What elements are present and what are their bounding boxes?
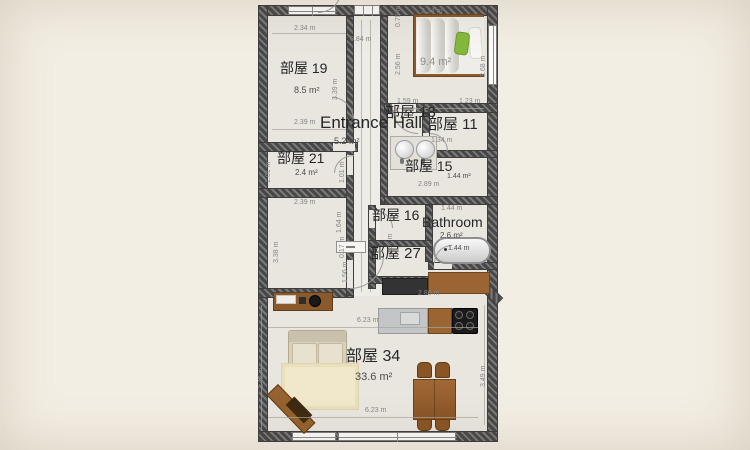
cooktop-burner — [466, 311, 474, 319]
dim-bedroom-left: 2.56 m — [395, 54, 403, 75]
dim-bathtub: 1.44 m — [448, 245, 469, 253]
room16-label: 部屋 16 — [372, 208, 419, 223]
room34-label: 部屋 34 — [346, 349, 400, 364]
dim-living-bottom: 6.23 m — [365, 407, 386, 415]
dim-bathroom-top: 1.44 m — [441, 205, 462, 213]
room15-label: 部屋 15 — [405, 159, 452, 174]
dim-room19-right: 3.39 m — [332, 79, 340, 100]
dim-midroom-right2: 0.17 m — [339, 237, 347, 258]
entrance-hall-area: 5.2 m² — [334, 136, 360, 146]
sink-basin — [395, 140, 414, 159]
sofa-cushion — [292, 343, 317, 365]
white-pillow — [468, 27, 483, 60]
room19-label: 部屋 19 — [280, 61, 327, 76]
dim-bedroom-right: 2.68 m — [480, 56, 488, 77]
room11-label: 部屋 11 — [428, 117, 478, 132]
room21-label: 部屋 21 — [277, 151, 324, 166]
dim-room21-left: 1.01 m — [265, 162, 273, 183]
dimline — [268, 417, 478, 418]
room19-area: 8.5 m² — [294, 85, 320, 95]
dining-chair — [435, 362, 450, 378]
kitchen-sink — [400, 312, 420, 325]
cabinet-handle — [346, 246, 355, 248]
floor-plan: 2.34 m 2.39 m 3.39 m 1.01 m 1.01 m 2.39 … — [258, 5, 498, 442]
dim-kitchen: 2.86 m — [418, 290, 439, 298]
dim-bedroom-top: 2.34 m — [421, 8, 442, 16]
wall-r21-bottom — [258, 188, 354, 198]
dim-living-left: 3.49 m — [258, 368, 266, 389]
window-bottom-right — [338, 432, 456, 441]
room15-area: 1.44 m² — [447, 173, 471, 180]
dim-room19-bottom: 2.39 m — [294, 119, 315, 127]
dim-midroom-right1: 1.64 m — [336, 212, 344, 233]
sideboard-bowl — [309, 295, 321, 307]
sideboard-tray — [276, 295, 296, 304]
dim-hall-width: 0.84 m — [350, 36, 371, 44]
dim-midroom-left: 3.38 m — [273, 242, 281, 263]
dim-bedroom-topleft: 0.75 m — [395, 6, 403, 27]
dimline — [268, 327, 478, 328]
entry-door — [354, 5, 380, 15]
dining-table-seam — [434, 379, 435, 420]
dim-room15-width: 2.89 m — [418, 181, 439, 189]
dim-midroom-top: 2.39 m — [294, 199, 315, 207]
dim-room21-right: 1.01 m — [339, 162, 347, 183]
wall-r15-bottom — [384, 196, 498, 205]
window-bedroom-right — [488, 25, 497, 85]
room34-area: 33.6 m² — [355, 371, 392, 383]
green-pillow — [454, 31, 471, 56]
cooktop-burner — [455, 322, 463, 330]
bedroom-area: 9.4 m² — [420, 56, 451, 68]
cooktop-burner — [455, 311, 463, 319]
dim-bedroom-bottom-right: 1.23 m — [459, 98, 480, 106]
bathroom-label: Bathroom — [422, 215, 483, 230]
sink-faucet — [400, 158, 404, 164]
cooktop-burner — [466, 322, 474, 330]
dim-midroom-right3: 1.56 m — [342, 262, 350, 283]
dim-room11-width: 1.34 m — [431, 137, 452, 145]
dining-chair — [417, 362, 432, 378]
dimline — [272, 33, 346, 34]
sofa-cushion — [318, 343, 343, 365]
kitchen-cabinet — [428, 308, 452, 334]
window-bottom-left — [292, 432, 336, 441]
room27-label: 部屋 27 — [370, 246, 421, 261]
sofa-back — [289, 331, 346, 342]
sideboard-box — [299, 297, 306, 304]
dim-living-top: 6.23 m — [357, 317, 378, 325]
dim-room19-top: 2.34 m — [294, 25, 315, 33]
floorplan-canvas: 2.34 m 2.39 m 3.39 m 1.01 m 1.01 m 2.39 … — [0, 0, 750, 450]
room21-area: 2.4 m² — [295, 168, 318, 177]
bathroom-area: 2.6 m² — [440, 231, 463, 240]
dim-living-right: 3.49 m — [480, 366, 488, 387]
